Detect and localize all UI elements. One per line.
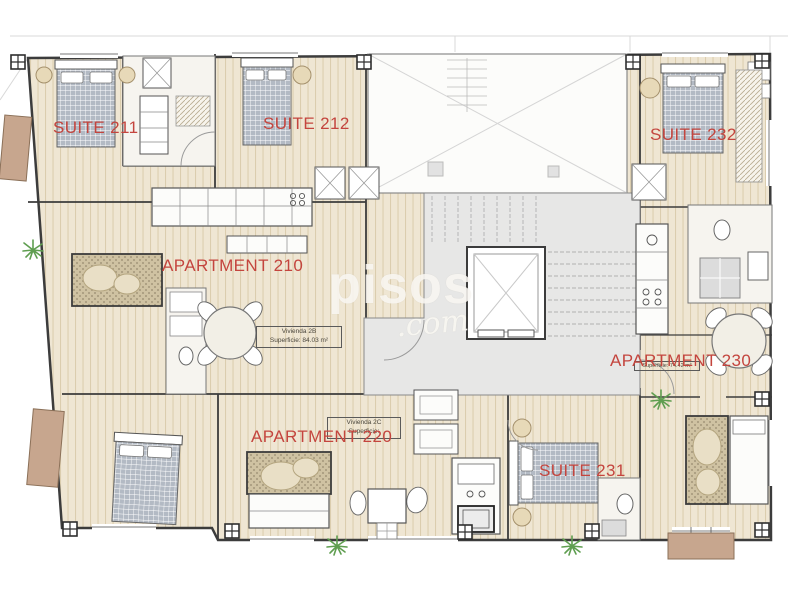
elevator	[467, 247, 545, 339]
toilet-icon	[617, 494, 633, 514]
sink-icon	[458, 464, 494, 484]
area-tag-vivienda-2b: Vivienda 2B Superficie: 84.03 m²	[256, 326, 342, 348]
room-label-apartment-210: APARTMENT 210	[162, 257, 303, 274]
kitchen-230	[636, 224, 668, 334]
room-label-suite-212: SUITE 212	[263, 115, 350, 132]
toilet-icon	[714, 220, 730, 240]
bed-apartment-220	[247, 452, 331, 528]
wardrobe-232	[736, 70, 762, 182]
plant-icon	[23, 240, 43, 259]
toilet-icon	[179, 347, 193, 365]
room-label-apartment-220: APARTMENT 220	[251, 428, 392, 445]
balcony-left-top	[0, 115, 32, 181]
room-label-apartment-230: APARTMENT 230	[610, 352, 751, 369]
patio	[368, 54, 627, 193]
room-label-suite-211: SUITE 211	[53, 119, 139, 136]
balcony-left-bottom	[27, 409, 65, 487]
bathroom-right	[688, 205, 772, 303]
shower-icon	[143, 58, 171, 88]
bathroom-suites-top	[123, 56, 215, 166]
room-label-suite-231: SUITE 231	[539, 462, 626, 479]
area-tag-name: Vivienda 2B	[260, 328, 338, 337]
floor-plan-drawing	[0, 0, 800, 600]
bed-apartment-230	[686, 416, 768, 504]
floor-plan: pisos .com Vivienda 2B Superficie: 84.03…	[0, 0, 800, 600]
area-tag-surface: Superficie: 84.03 m²	[260, 337, 338, 346]
bed-bottom-left	[110, 432, 183, 524]
bed-apartment-210	[72, 254, 162, 306]
balcony-bottom-right	[668, 533, 734, 559]
bathroom-suite-231	[598, 478, 640, 540]
room-label-suite-232: SUITE 232	[650, 126, 737, 143]
kitchen-220	[452, 458, 500, 534]
